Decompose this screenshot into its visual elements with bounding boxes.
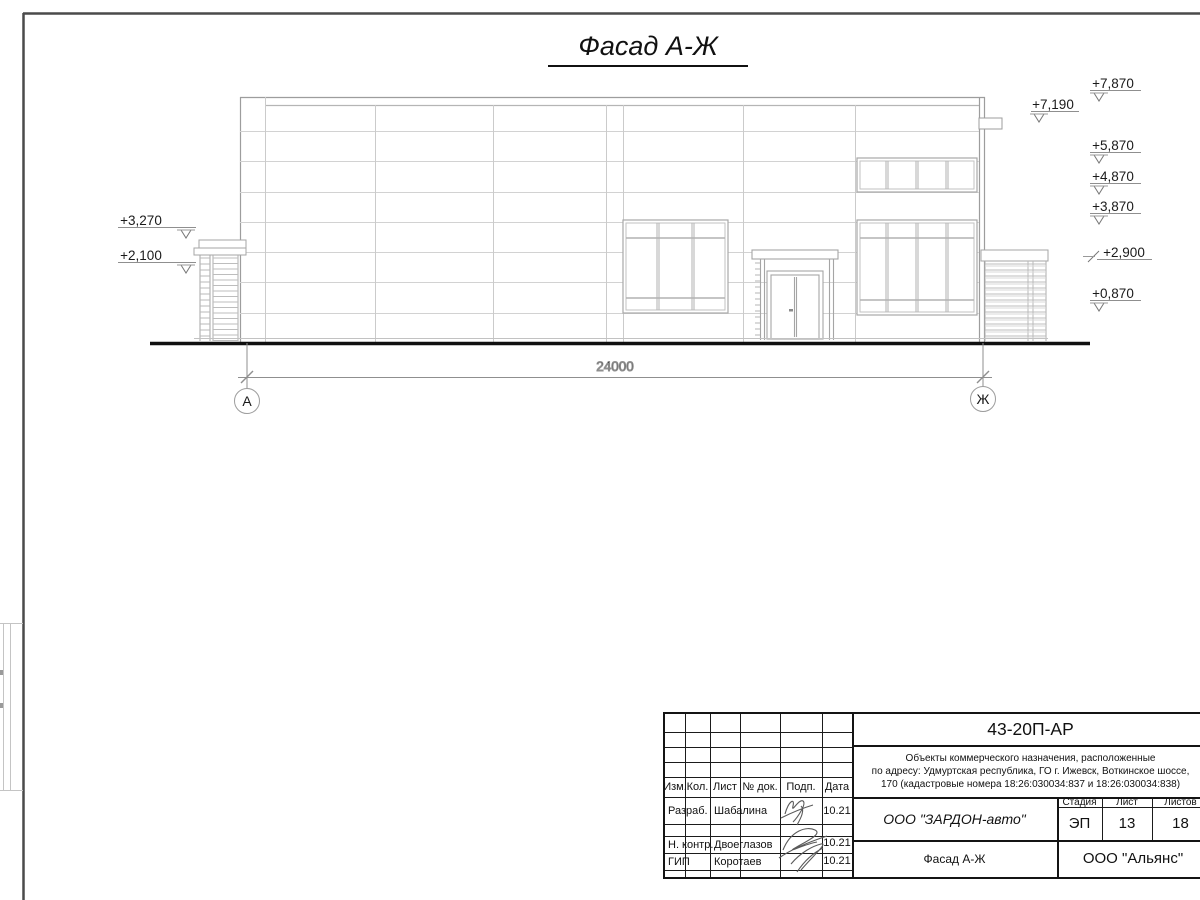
jamb-ticks (755, 263, 760, 335)
elevation-mark: +7,870 (1090, 76, 1141, 101)
elevation-mark-label: +7,870 (1092, 76, 1134, 91)
signatures (771, 792, 837, 880)
drawing-sheet: { "title": "Фасад А-Ж", "drawing": { "di… (0, 0, 1200, 900)
elevation-mark: +2,900 (1083, 245, 1152, 262)
elevation-arrow (181, 230, 191, 238)
tb-sheet-title: Фасад А-Ж (852, 840, 1057, 877)
axis-letter-a: А (242, 393, 252, 409)
elevation-mark: +4,870 (1090, 169, 1141, 194)
entrance (752, 250, 838, 340)
elevation-mark: +7,190 (1030, 97, 1079, 122)
elevation-mark: +5,870 (1090, 138, 1141, 163)
elevation-mark: +2,100 (118, 248, 196, 273)
elevation-mark-label: +7,190 (1032, 97, 1074, 112)
tb-col-izm: Изм. (665, 777, 685, 797)
elevation-mark-label: +0,870 (1092, 286, 1134, 301)
tb-company: ООО "ЗАРДОН-авто" (852, 797, 1057, 840)
tb-sheets-value: 18 (1152, 807, 1200, 840)
elevation-arrow (1094, 155, 1104, 163)
title-block: Изм. Кол. Лист № док. Подп. Дата Разраб.… (663, 712, 1200, 879)
axis-marker-zh: Ж (971, 387, 996, 412)
tb-desc-line2: по адресу: Удмуртская республика, ГО г. … (872, 765, 1190, 778)
tb-col-list: Лист (710, 777, 740, 797)
tb-role-razrab: Разраб. (665, 797, 713, 824)
elevation-arrow (1094, 186, 1104, 194)
door-handle (789, 309, 793, 312)
elevation-arrow (1034, 114, 1044, 122)
elevation-mark: +3,270 (118, 213, 196, 238)
signature-razrab (781, 801, 813, 825)
elevation-arrow (1094, 303, 1104, 311)
elevation-mark-label: +3,270 (120, 213, 162, 228)
axis-marker-a: А (235, 389, 260, 414)
elevation-mark: +0,870 (1090, 286, 1141, 311)
roof-outlet (979, 118, 1002, 129)
tb-desc-line3: 170 (кадастровые номера 18:26:030034:837… (881, 778, 1180, 791)
tb-doc-number: 43-20П-АР (852, 714, 1200, 745)
tb-col-kol: Кол. (685, 777, 710, 797)
tb-stage-label: Стадия (1057, 797, 1102, 807)
left-margin-stamp (0, 623, 23, 791)
tb-project-description: Объекты коммерческого назначения, распол… (852, 745, 1200, 797)
elevation-mark-label: +2,900 (1103, 245, 1145, 260)
tb-sheet-value: 13 (1102, 807, 1152, 840)
elevation-mark-label: +4,870 (1092, 169, 1134, 184)
elevation-mark-label: +5,870 (1092, 138, 1134, 153)
tb-stage-value: ЭП (1057, 807, 1102, 840)
tb-desc-line1: Объекты коммерческого назначения, распол… (906, 752, 1156, 765)
dimension-line: 24000 (238, 343, 992, 389)
elevation-arrow (181, 265, 191, 273)
tb-sheet-label: Лист (1102, 797, 1152, 807)
dimension-text: 24000 (596, 359, 634, 374)
elevation-mark-label: +2,100 (120, 248, 162, 263)
elevation-mark: +3,870 (1090, 199, 1141, 224)
signature-nkontr-gip (779, 829, 827, 872)
tb-role-nkontr: Н. контр. (665, 836, 713, 853)
tb-role-gip: ГИП (665, 853, 713, 870)
elevation-arrow (1094, 93, 1104, 101)
elevation-arrow (1094, 216, 1104, 224)
tb-contractor: ООО "Альянс" (1057, 840, 1200, 877)
axis-letter-zh: Ж (977, 391, 990, 407)
drawing-title: Фасад А-Ж (548, 31, 748, 67)
tb-sheets-label: Листов (1152, 797, 1200, 807)
elevation-mark-label: +3,870 (1092, 199, 1134, 214)
